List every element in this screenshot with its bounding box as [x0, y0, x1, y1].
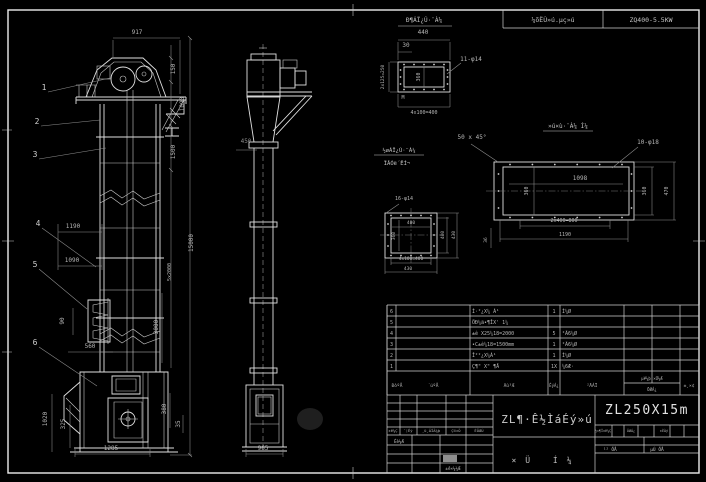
titleblock-right-labels: ½×¶Î±ê¼ÇÖØÁ¿±ÈÀý — [595, 428, 668, 434]
bom-header-no: ÐòºÅ — [392, 382, 403, 389]
bom-item-material: ¼6Æ· — [562, 364, 574, 370]
bolt-hole — [390, 215, 392, 217]
bom-item-name: ±ê X25¼18=2000 — [472, 330, 514, 337]
bolt-hole — [390, 255, 392, 257]
side-elevation-view — [242, 44, 312, 452]
bom-header-weight: ÖØÁ¿ — [647, 387, 657, 392]
revision-column-label: ±ê¼Ç — [388, 428, 397, 434]
bolt-hole — [599, 217, 601, 219]
header-mid-cell: ¼õËÙ»ú.µç»ú — [531, 15, 574, 24]
dimension-label: 450 — [241, 138, 252, 145]
bolt-hole — [631, 173, 633, 175]
dimension-lines — [52, 36, 283, 457]
bolt-hole — [631, 207, 633, 209]
titleblock-right-label: ±ÈÀý — [660, 428, 668, 433]
bom-item-no: 1 — [390, 364, 393, 370]
revision-labels: ±ê¼Ç´¦Êý¸ü¸ÄÎÄ¼þÇ©×ÖÈÕÆÚ — [388, 428, 484, 434]
dimension-label: 1190 — [559, 232, 571, 238]
dimension-label: 1090 — [65, 257, 80, 264]
bolt-hole — [413, 64, 415, 66]
signature-mark — [443, 455, 457, 462]
dimension-label: 5x2000 — [167, 263, 173, 281]
revision-column-label: ´¦Êý — [403, 428, 413, 433]
dimension-label: 400 — [440, 231, 446, 239]
dimension-label: 50 x 45° — [458, 134, 487, 141]
dimension-label: 30 — [402, 42, 410, 49]
bolt-hole-marks — [387, 64, 632, 257]
bom-item-no: 4 — [390, 331, 393, 337]
dimension-label: 560 — [85, 343, 96, 350]
bom-item-name: Ç¶" X" ¶Å — [472, 363, 499, 370]
dimension-label: 1090 — [179, 96, 186, 111]
bom-item-no: 6 — [390, 309, 393, 315]
bom-item-no: 5 — [390, 320, 393, 326]
bom-item-qty: 1X — [551, 364, 557, 370]
dimension-label: 90 — [59, 317, 66, 325]
dimension-label: 430 — [404, 266, 412, 272]
bolt-hole — [410, 215, 412, 217]
dimension-label: 36 — [483, 237, 489, 243]
bolt-hole — [631, 190, 633, 192]
bolt-hole — [621, 164, 623, 166]
dimension-label: 16-φ14 — [395, 196, 413, 202]
bolt-hole — [400, 215, 402, 217]
bolt-hole — [387, 223, 389, 225]
bolt-hole — [420, 255, 422, 257]
bom-header-name: Ãû³Æ — [504, 382, 515, 389]
dimension-label: 4x100=400 — [399, 256, 424, 262]
model-number: ZL250X15m — [605, 403, 689, 418]
bolt-hole — [447, 69, 449, 71]
bolt-hole — [433, 245, 435, 247]
dimension-label: 360 — [642, 186, 648, 195]
bolt-hole — [423, 89, 425, 91]
bolt-hole — [443, 64, 445, 66]
dimension-label: 360 — [524, 186, 530, 195]
titleblock-right-label: ½×¶Î±ê¼Ç — [595, 428, 611, 434]
detail-2-title: »ú×ù·¨À¼ Í¼ — [548, 122, 588, 130]
dimension-label: 4x100=400 — [410, 110, 437, 116]
bolt-hole — [430, 255, 432, 257]
bom-item-name: Î²²¿X¼Á¹ — [472, 352, 496, 359]
bom-item-name: ÖÐ¼ä•¶ÎX' 1¼ — [472, 319, 508, 326]
sheet-number-label: µÚ ÕÅ — [650, 446, 664, 453]
bolt-hole — [403, 89, 405, 91]
bolt-hole — [554, 217, 556, 219]
detail-3-title-line1: ½øÁÏ¿Ú·¨À¼ — [382, 147, 415, 154]
bolt-hole — [447, 83, 449, 85]
bom-table: 6Í·²¿X¼ Á¹1Ì¼Ø5ÖÐ¼ä•¶ÎX' 1¼4±ê X25¼18=20… — [387, 305, 699, 395]
bolt-hole — [576, 164, 578, 166]
dimension-label: 1190 — [66, 223, 81, 230]
dimension-label: 430 — [451, 231, 457, 239]
dimension-label: 360 — [391, 232, 397, 240]
drawing-subtitle: ×Ü Í¼ — [511, 454, 580, 465]
dimension-label: M — [401, 95, 404, 101]
bolt-hole — [554, 164, 556, 166]
bom-item-material: Ì¼Ø — [562, 352, 571, 359]
revision-column-label: ¸ü¸ÄÎÄ¼þ — [422, 428, 441, 434]
bolt-hole — [400, 76, 402, 78]
bom-item-no: 2 — [390, 353, 393, 359]
bolt-hole — [443, 89, 445, 91]
drawing-canvas: ¼õËÙ»ú.µç»ú ZQ400-5.5KW — [0, 0, 706, 482]
dimension-label: 360 — [416, 72, 422, 81]
bolt-hole — [447, 76, 449, 78]
bom-item-qty: 1 — [552, 309, 555, 315]
bom-item-qty: 1 — [552, 342, 555, 348]
dimension-label: 15000 — [188, 234, 195, 252]
bolt-hole — [430, 215, 432, 217]
dimension-label: 440 — [418, 29, 429, 36]
dimension-label: 1500 — [170, 144, 177, 159]
front-elevation-view — [64, 58, 186, 452]
bolt-hole — [400, 83, 402, 85]
header-strip: ¼õËÙ»ú.µç»ú ZQ400-5.5KW — [503, 10, 699, 28]
screen-smudge — [297, 408, 323, 430]
dimension-label: 2x125=250 — [380, 65, 386, 90]
bolt-hole — [433, 89, 435, 91]
bolt-hole — [433, 234, 435, 236]
detail-inlet-flange: ½øÁÏ¿Ú·¨À¼ ÏÂÓë´ËÍ¬ — [374, 147, 459, 274]
dimension-label: 400 — [407, 220, 415, 226]
dimension-label: 1098 — [573, 175, 588, 182]
bom-item-name: •C±ê¼18=1500mm — [472, 341, 514, 348]
bolt-hole — [433, 223, 435, 225]
revision-column-label: ÈÕÆÚ — [474, 428, 484, 433]
dimension-label: 965 — [258, 445, 269, 452]
bolt-hole — [599, 164, 601, 166]
titleblock-right-label: ÖØÁ¿ — [627, 428, 635, 433]
bom-header-code: ´úºÅ — [428, 382, 439, 389]
sheet-count-label: ¹² ÕÅ — [603, 446, 617, 453]
table-line — [41, 120, 100, 126]
dimension-label: 325 — [60, 418, 67, 429]
bom-header-qty: ÊýÁ¿ — [549, 383, 559, 388]
bom-item-material: ²Ã6¼Ø — [562, 341, 577, 348]
revision-column-label: Ç©×Ö — [451, 428, 461, 433]
balloon-number: 1 — [42, 83, 47, 92]
bolt-hole — [420, 215, 422, 217]
bolt-hole — [403, 64, 405, 66]
bolt-hole — [621, 217, 623, 219]
bolt-hole — [532, 164, 534, 166]
balloon-number: 5 — [33, 260, 38, 269]
dimension-label: 470 — [664, 186, 670, 195]
table-line — [39, 269, 87, 309]
bolt-hole — [410, 255, 412, 257]
bolt-hole — [532, 217, 534, 219]
bolt-hole — [387, 245, 389, 247]
detail-1-title: Ð¶ÁÏ¿Ú·¨À¼ — [406, 17, 443, 24]
detail-3-title-line2: ÏÂÓë´ËÍ¬ — [384, 159, 411, 167]
sheet-frame — [2, 4, 705, 479]
bom-item-material: ²Ã6¼Ø — [562, 330, 577, 337]
bolt-hole — [413, 89, 415, 91]
bolt-hole — [423, 64, 425, 66]
bolt-hole — [433, 64, 435, 66]
bolt-hole — [576, 217, 578, 219]
dimension-label: 11-φ14 — [460, 56, 482, 63]
sign-label-standard: ±ê×¼¼Æ — [445, 466, 461, 472]
bolt-hole — [509, 217, 511, 219]
bolt-hole — [498, 207, 500, 209]
dimension-label: 35 — [175, 420, 182, 428]
balloon-number: 2 — [35, 117, 40, 126]
bom-item-qty: 5 — [552, 331, 555, 337]
bolt-hole — [400, 69, 402, 71]
table-line — [39, 148, 106, 159]
dimension-label: 10-φ18 — [637, 139, 659, 146]
dimension-label: 1285 — [104, 445, 119, 452]
bom-header-material: ²ÄÁÏ — [587, 382, 598, 389]
balloon-number: 3 — [33, 150, 38, 159]
bom-item-name: Í·²¿X¼ Á¹ — [472, 307, 499, 315]
bom-item-no: 3 — [390, 342, 393, 348]
bom-item-qty: 1 — [552, 353, 555, 359]
balloon-number: 6 — [33, 338, 38, 347]
dimension-label: 917 — [132, 29, 143, 36]
bolt-hole — [400, 255, 402, 257]
bolt-hole — [498, 190, 500, 192]
dimension-label: 150 — [170, 63, 177, 74]
dimension-label: 3000 — [153, 319, 160, 334]
sign-label-design: Éè¼Æ — [394, 439, 405, 445]
bom-header-remark: ±¸×¢ — [684, 383, 695, 389]
dimension-label: 2x400=800 — [550, 218, 577, 224]
bolt-hole — [498, 173, 500, 175]
cad-drawing-sheet: ¼õËÙ»ú.µç»ú ZQ400-5.5KW — [0, 0, 706, 482]
bom-item-material: Ì¼Ø — [562, 308, 571, 315]
dimension-label: 1020 — [42, 411, 49, 426]
balloon-number: 4 — [36, 219, 41, 228]
bolt-hole — [387, 234, 389, 236]
dimension-label: 380 — [161, 403, 168, 414]
table-line — [39, 347, 97, 386]
bolt-hole — [509, 164, 511, 166]
header-drive-spec: ZQ400-5.5KW — [629, 16, 672, 24]
drawing-title: ZL¶·Ê½ÌáÉý»ú — [501, 413, 592, 426]
